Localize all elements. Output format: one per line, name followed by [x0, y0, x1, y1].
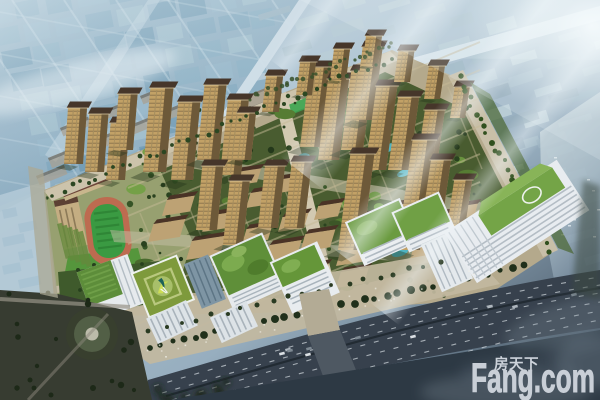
svg-text:Fang.com: Fang.com [471, 355, 595, 400]
